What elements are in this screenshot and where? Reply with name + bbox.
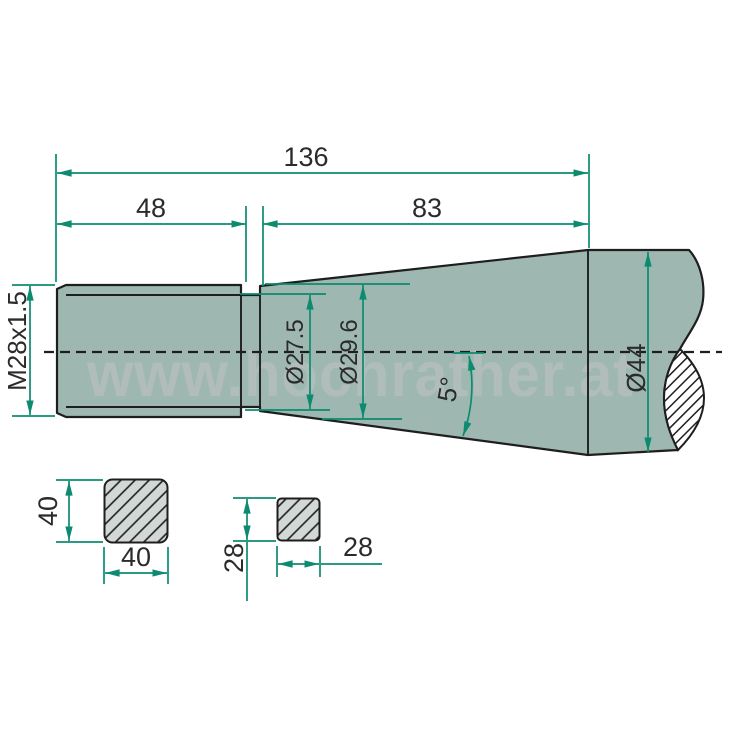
small-square-section [278, 499, 320, 541]
cross-section-large-square: 40 40 [33, 480, 168, 585]
thread-length-label: 48 [136, 193, 166, 223]
small-square-width-label: 28 [343, 532, 373, 562]
dimension-thread-spec: M28x1.5 [2, 285, 55, 416]
overall-length-label: 136 [283, 142, 328, 172]
large-square-section [105, 480, 168, 543]
small-square-height-label: 28 [219, 543, 249, 573]
tine-dimension-drawing: www.hochrather.at 136 48 83 M28x1.5 [0, 0, 730, 730]
dimension-thread-length: 48 [57, 193, 246, 282]
large-square-width-label: 40 [121, 542, 151, 572]
thread-spec-label: M28x1.5 [2, 291, 32, 391]
taper-mid-dia-label: Ø29.6 [336, 319, 363, 384]
shaft-dia-label: Ø44 [621, 343, 651, 392]
technical-drawing-page: www.hochrather.at 136 48 83 M28x1.5 [0, 0, 730, 730]
taper-angle-label: 5° [431, 375, 465, 405]
taper-small-dia-label: Ø27.5 [282, 319, 309, 384]
cross-section-small-square: 28 28 [219, 498, 382, 601]
large-square-height-label: 40 [33, 496, 63, 526]
taper-length-label: 83 [412, 193, 442, 223]
